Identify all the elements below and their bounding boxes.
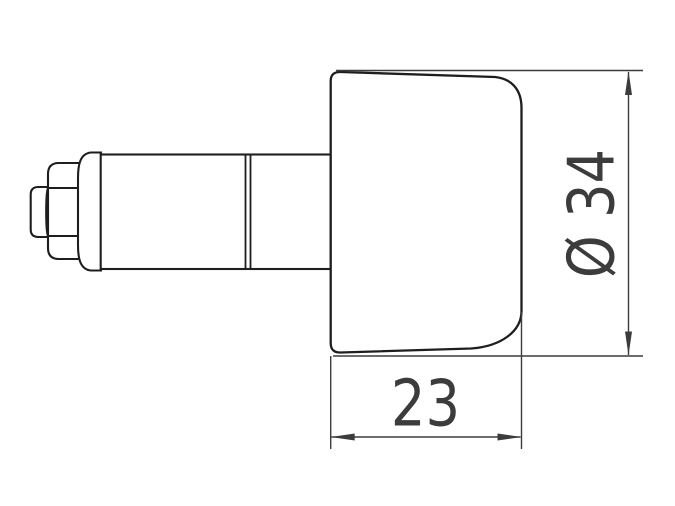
width-dimension-label: 23: [391, 367, 460, 441]
hex-nut-outline: [48, 163, 80, 259]
expander-shaft: [101, 155, 331, 270]
technical-drawing-page: Ø 34 23: [0, 0, 675, 506]
technical-drawing-canvas: Ø 34 23: [0, 0, 675, 506]
hex-nut: [46, 163, 80, 259]
bar-end-weight-body: [331, 72, 522, 353]
diameter-dimension-label: Ø 34: [555, 149, 629, 278]
mounting-flange: [78, 153, 101, 271]
